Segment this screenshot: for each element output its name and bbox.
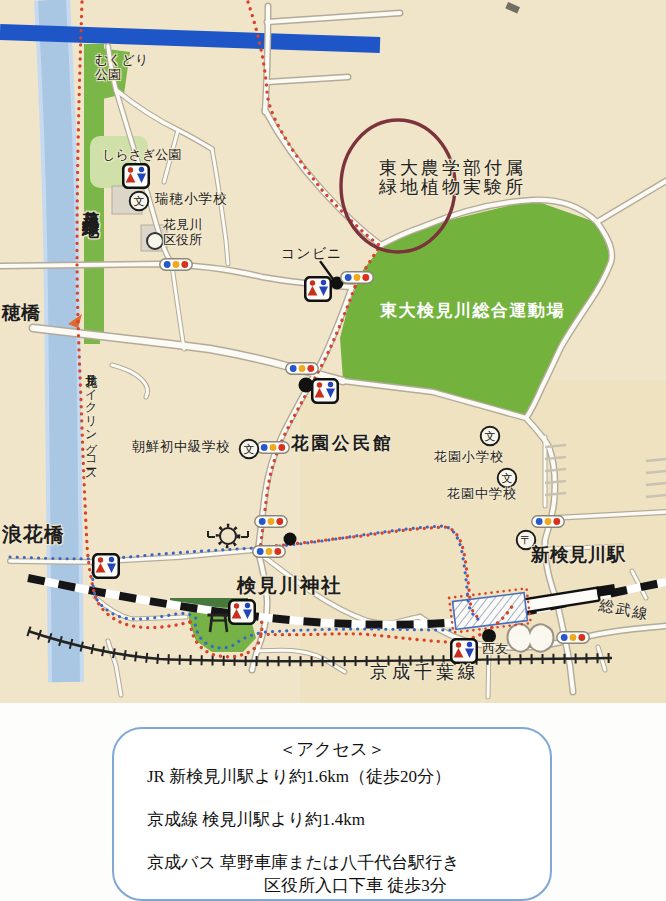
access-line-bus-stop: 区役所入口下車 徒歩3分 xyxy=(264,874,447,897)
label-senbonzakura-greenbelt: 花見川千本桜緑地 xyxy=(80,197,100,209)
school-icon xyxy=(481,427,500,446)
school-icon xyxy=(240,440,259,459)
label-sports-ground: 東大検見川総合運動場 xyxy=(380,301,565,321)
label-mukudori-park: むくどり公園 xyxy=(95,52,155,83)
traffic-light-icon xyxy=(160,259,192,270)
school-icon xyxy=(130,192,149,211)
traffic-light-icon xyxy=(257,442,289,453)
label-cycling-course: 花見川サイクリングコース xyxy=(84,366,98,475)
label-naniwa-bridge: 浪花橋 xyxy=(2,523,65,547)
restroom-icon xyxy=(123,164,149,188)
label-ho-bridge: 穂橋 xyxy=(2,302,40,324)
restroom-icon xyxy=(312,379,338,403)
label-conbini: コンビニ xyxy=(281,245,342,262)
traffic-light-icon xyxy=(532,516,564,527)
label-seiyu: 西友 xyxy=(482,641,508,656)
landmark-dot xyxy=(284,533,297,546)
area-map: 文 〒 xyxy=(0,0,666,703)
access-line-bus: 京成バス 草野車庫または八千代台駅行き xyxy=(147,851,460,874)
traffic-light-icon xyxy=(557,632,589,643)
label-hanazono-junior-high: 花園中学校 xyxy=(447,486,517,501)
label-todai-lab-2: 緑地植物実験所 xyxy=(379,177,526,198)
label-shirasagi-park: しらさぎ公園 xyxy=(102,147,181,162)
label-hanazono-elementary: 花園小学校 xyxy=(434,449,504,464)
traffic-light-icon xyxy=(341,272,373,283)
access-info-box: ＜アクセス＞ JR 新検見川駅より約1.6km（徒歩20分） 京成線 検見川駅よ… xyxy=(112,727,552,901)
map-graphics: 文 〒 xyxy=(0,0,666,703)
school-icon xyxy=(498,469,517,488)
label-kemigawa-shrine: 検見川神社 xyxy=(237,574,342,597)
label-keisei-chiba-line: 京成千葉線 xyxy=(370,662,480,683)
access-title: ＜アクセス＞ xyxy=(114,737,550,761)
label-hanazono-community-center: 花園公民館 xyxy=(291,433,394,454)
traffic-light-icon xyxy=(255,516,287,527)
restroom-icon xyxy=(305,277,331,301)
label-shin-kemigawa-station: 新検見川駅 xyxy=(531,544,626,566)
restroom-icon xyxy=(229,600,255,624)
traffic-light-icon xyxy=(253,546,285,557)
label-ward-office-1: 花見川 xyxy=(163,217,202,232)
access-line-jr: JR 新検見川駅より約1.6km（徒歩20分） xyxy=(147,765,451,788)
access-line-keisei: 京成線 検見川駅より約1.4km xyxy=(147,808,365,831)
label-korean-school: 朝鮮初中級学校 xyxy=(132,439,230,455)
label-mizuho-elementary: 瑞穂小学校 xyxy=(155,191,228,207)
restroom-icon xyxy=(451,639,477,663)
traffic-light-icon xyxy=(286,363,318,374)
restroom-icon xyxy=(93,554,119,578)
scanned-access-map-page: 文 〒 xyxy=(0,0,666,901)
label-ward-office-2: 区役所 xyxy=(163,232,202,247)
ward-office-symbol xyxy=(147,233,163,249)
